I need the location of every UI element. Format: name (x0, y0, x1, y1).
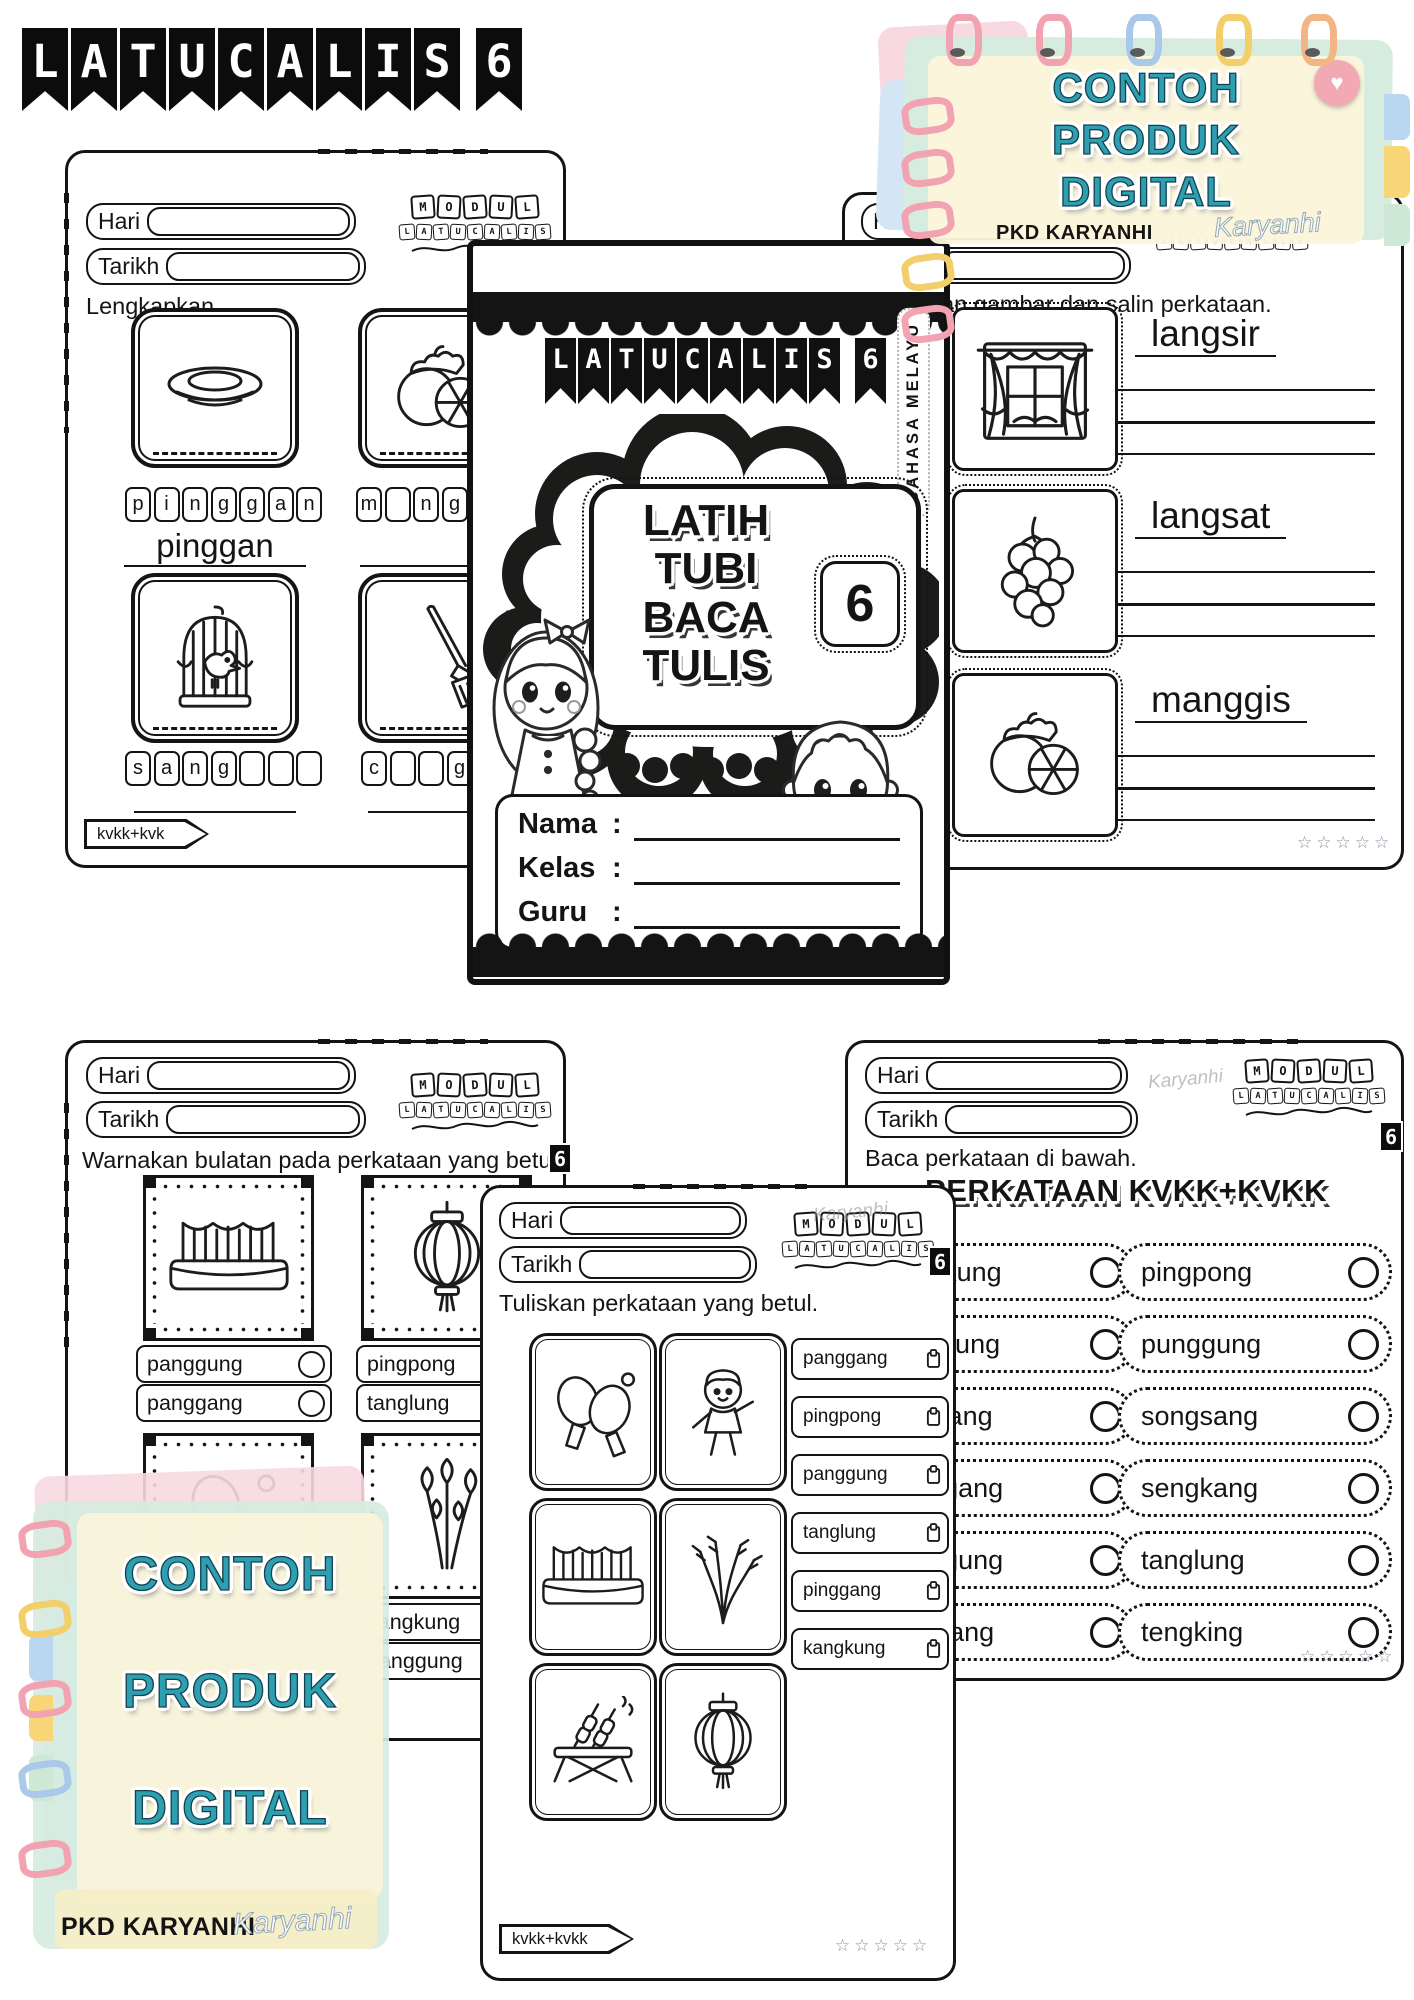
plate-card (131, 308, 299, 468)
kvkk-tab: kvkk+kvk (84, 819, 209, 849)
cover-title-panel: LATIH TUBI BACA TULIS 6 (589, 484, 921, 730)
cover-scallop-top (473, 292, 944, 322)
heart-badge-icon: ♥ (1314, 60, 1360, 106)
instruction-text: Warnakan bulatan pada perkataan yang bet… (82, 1147, 563, 1174)
name-panel: Nama: Kelas: Guru: (495, 794, 923, 950)
modul-latucalis-logo: MODUL LATUCALIS (396, 1073, 554, 1135)
word-oval: tanglung (1118, 1531, 1392, 1589)
brand-signature: Karyanhi (232, 1902, 352, 1942)
header-number-tile: 6 (476, 28, 522, 111)
paddy-image (677, 1525, 769, 1629)
watermark-line: DIGITAL (132, 1781, 327, 1836)
birdcage-card (131, 573, 299, 743)
page-number-badge: 6 (548, 1143, 572, 1174)
word-oval: pingpong (1118, 1243, 1392, 1301)
langsir-card (952, 307, 1118, 471)
note-tab-blue (1384, 94, 1410, 140)
cover-title-banner: LATUCALIS 6 (545, 338, 888, 404)
langsat-card (952, 489, 1118, 653)
answer-line-pinggan: pinggan (124, 519, 306, 567)
cover-number-tile: 6 (855, 338, 886, 404)
satay-image (543, 1696, 643, 1788)
word-langsat: langsat (1135, 495, 1286, 539)
boy-exercise-card (659, 1333, 787, 1491)
hari-field: Hari (86, 203, 356, 240)
cover-page: LATUCALIS 6 BAHASA MELAYU (467, 240, 950, 985)
answer-circle (298, 1390, 325, 1417)
note-tab-green (1384, 204, 1410, 246)
note-paper-cream: CONTOH PRODUK DIGITAL (77, 1513, 383, 1899)
word-tag: pingpong (791, 1396, 949, 1438)
tarikh-blank (166, 252, 360, 281)
panggung-card (143, 1175, 314, 1341)
brand-signature: Karyanhi (1213, 207, 1321, 244)
manggis-card (952, 673, 1118, 837)
watermark-line: CONTOH (1052, 64, 1239, 112)
page-number-badge: 6 (928, 1246, 952, 1277)
satay-card (529, 1663, 657, 1821)
note-tab-blue (29, 1635, 53, 1681)
sheet-deco-dashes (64, 193, 69, 433)
logo-row-modul: MODUL (396, 195, 554, 219)
watermark-note-top: CONTOH PRODUK DIGITAL ♥ PKD KARYANHI Kar… (878, 22, 1408, 252)
rating-stars: ☆☆☆☆☆ (1300, 1647, 1396, 1667)
kelas-line (634, 852, 900, 885)
word-langsir: langsir (1135, 313, 1276, 357)
letter-boxes-pinggan: pinggan (125, 487, 325, 522)
tarikh-field: Tarikh (86, 1101, 366, 1138)
hari-label: Hari (98, 208, 140, 235)
instruction-text: Tuliskan perkataan yang betul. (499, 1290, 818, 1317)
word-tag: pinggang (791, 1570, 949, 1612)
promo-page: LATUCALIS 6 Hari Tarikh Lengkapkan. MODU… (0, 0, 1414, 2000)
hari-blank (147, 207, 350, 236)
instruction-text: Baca perkataan di bawah. (865, 1145, 1137, 1172)
sheet-deco-dashes (318, 149, 488, 154)
watermark-line: PRODUK (1052, 116, 1240, 164)
worksheet-tuliskan-perkataan: Hari Tarikh Tuliskan perkataan yang betu… (480, 1185, 956, 1981)
hari-field: Hari (499, 1202, 747, 1239)
stage-card (529, 1498, 657, 1656)
brand-text: PKD KARYANHI (996, 222, 1153, 245)
kelas-row: Kelas: (518, 852, 900, 885)
word-tag: kangkung (791, 1628, 949, 1670)
lantern-image (681, 1692, 765, 1792)
word-tag: panggung (791, 1454, 949, 1496)
note-tab-yellow (1384, 146, 1410, 198)
paddy-card (659, 1498, 787, 1656)
tarikh-field: Tarikh (865, 1101, 1138, 1138)
answer-circle (298, 1351, 325, 1378)
tarikh-label: Tarikh (98, 253, 159, 280)
page-number-badge: 6 (1379, 1121, 1403, 1152)
cover-number-badge: 6 (820, 561, 900, 647)
nama-row: Nama: (518, 808, 900, 841)
watermark-line: PRODUK (123, 1664, 337, 1719)
stage-image (541, 1533, 645, 1621)
header-title-letters: LATUCALIS (22, 28, 463, 111)
stage-image (168, 1206, 290, 1310)
rating-stars: ☆☆☆☆☆ (835, 1936, 931, 1956)
guru-line (634, 896, 900, 929)
word-oval: sengkang (1118, 1459, 1392, 1517)
kvkk-tab: kvkk+kvkk (499, 1924, 634, 1954)
header-title-banner: LATUCALIS 6 (22, 28, 525, 111)
modul-latucalis-logo: MODUL LATUCALIS (1230, 1059, 1388, 1121)
word-tag: panggang (791, 1338, 949, 1380)
watermark-signature: Karyanhi (1147, 1066, 1224, 1094)
watermark-line: CONTOH (123, 1547, 336, 1602)
plate-image (155, 348, 275, 428)
hari-field: Hari (865, 1057, 1128, 1094)
word-manggis: manggis (1135, 679, 1307, 723)
guru-row: Guru: (518, 896, 900, 929)
clipboard-icon (926, 1349, 941, 1369)
pingpong-paddles-image (543, 1365, 643, 1459)
answer-line-sangkar (134, 765, 296, 813)
option-pill: panggung (136, 1345, 332, 1383)
birdcage-image (163, 599, 267, 717)
hari-field: Hari (86, 1057, 356, 1094)
boy-exercise-image (676, 1361, 770, 1463)
mangosteen-image (977, 702, 1093, 808)
paddles-card (529, 1333, 657, 1491)
brand-text: PKD KARYANHI (61, 1913, 255, 1942)
cover-title-letters: LATUCALIS (545, 338, 842, 404)
watermark-line: DIGITAL (1060, 168, 1232, 216)
kvkk-title: PERKATAAN KVKK+KVKK (906, 1173, 1346, 1209)
lantern-card (659, 1663, 787, 1821)
cover-title-text: LATIH TUBI BACA TULIS (606, 497, 806, 691)
tarikh-field: Tarikh (499, 1246, 757, 1283)
window-curtain-image (972, 331, 1098, 447)
tarikh-field: Tarikh (86, 248, 366, 285)
option-pill: panggang (136, 1384, 332, 1422)
word-tag: tanglung (791, 1512, 949, 1554)
rating-stars: ☆☆☆☆☆ (1297, 833, 1393, 853)
nama-line (634, 808, 900, 841)
langsat-image (982, 510, 1088, 632)
logo-row-latucalis: LATUCALIS (396, 221, 554, 240)
word-oval: punggung (1118, 1315, 1392, 1373)
watermark-note-bottom: CONTOH PRODUK DIGITAL PKD KARYANHI Karya… (25, 1465, 400, 1970)
word-oval: songsang (1118, 1387, 1392, 1445)
cover-scallop-bottom (473, 947, 944, 977)
